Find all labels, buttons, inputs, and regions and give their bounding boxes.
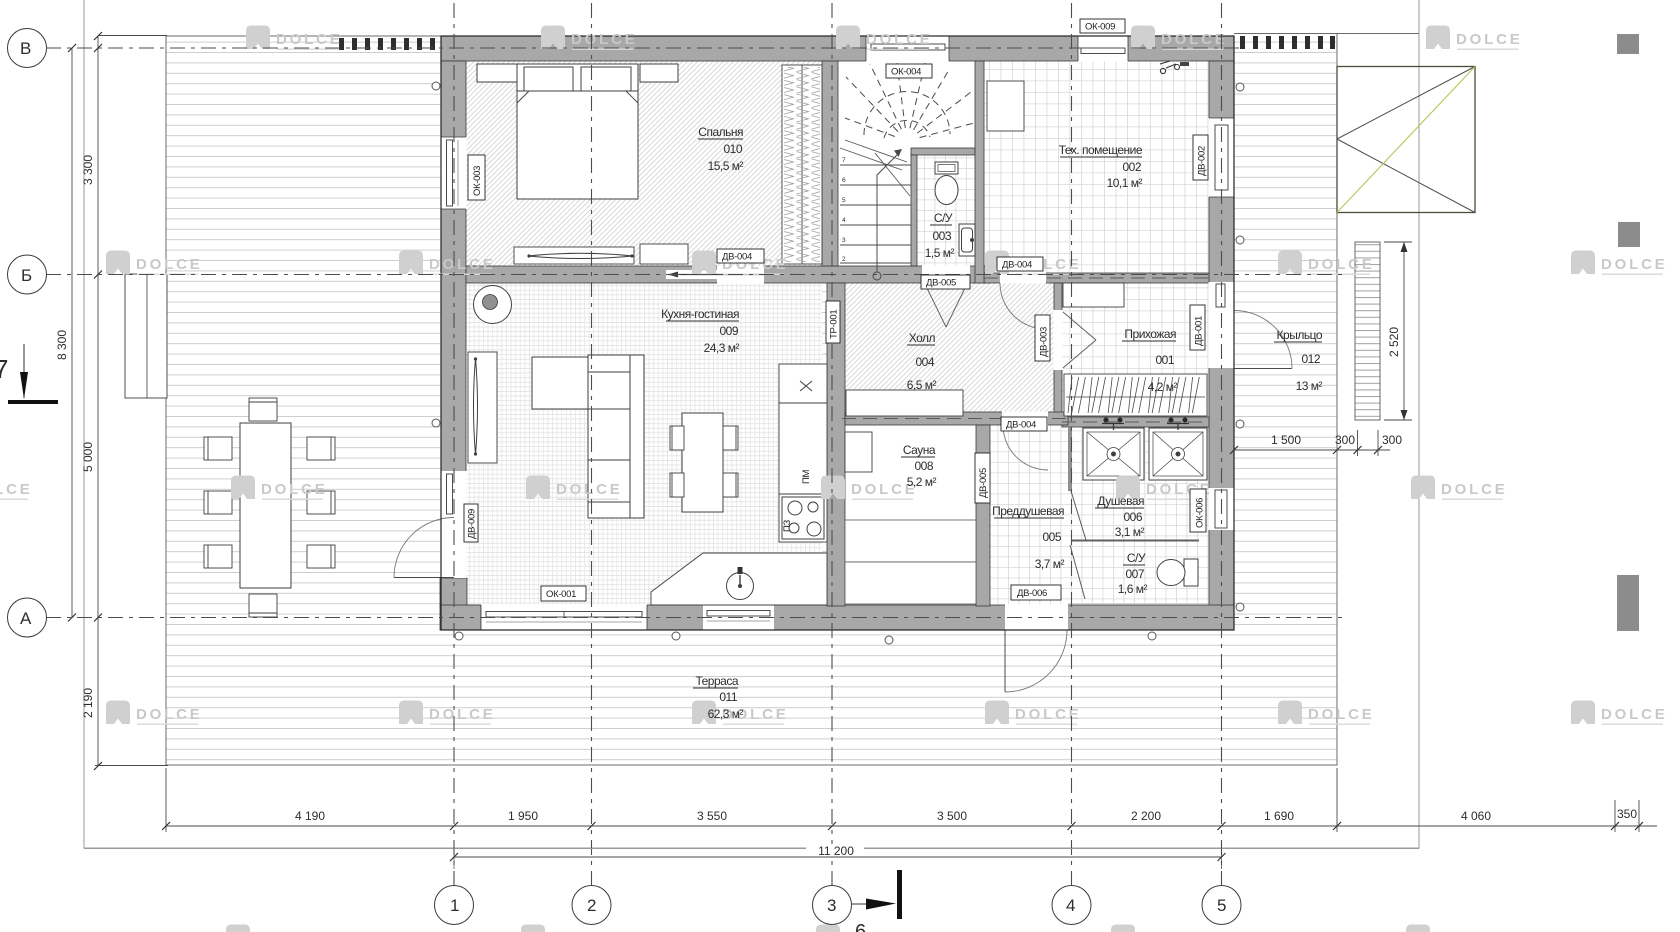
svg-text:Спальня: Спальня bbox=[698, 125, 743, 139]
svg-text:4 060: 4 060 bbox=[1461, 809, 1491, 823]
svg-text:Холл: Холл bbox=[909, 331, 936, 345]
svg-text:6,5 м²: 6,5 м² bbox=[907, 378, 937, 392]
svg-text:007: 007 bbox=[1125, 567, 1144, 581]
svg-text:2: 2 bbox=[587, 896, 596, 915]
svg-text:ДВ-004: ДВ-004 bbox=[722, 252, 752, 263]
svg-text:Терраса: Терраса bbox=[695, 674, 738, 688]
svg-text:3 500: 3 500 bbox=[937, 809, 967, 823]
svg-text:7: 7 bbox=[842, 157, 846, 164]
svg-text:ПМ: ПМ bbox=[801, 469, 812, 484]
svg-text:001: 001 bbox=[1155, 353, 1174, 367]
svg-text:ДВ-009: ДВ-009 bbox=[467, 509, 478, 539]
svg-text:4,2 м²: 4,2 м² bbox=[1148, 380, 1178, 394]
svg-text:ПЗ: ПЗ bbox=[782, 519, 793, 532]
svg-text:ОК-004: ОК-004 bbox=[891, 67, 921, 78]
svg-text:15,5 м²: 15,5 м² bbox=[708, 159, 744, 173]
svg-text:Сауна: Сауна bbox=[903, 443, 936, 457]
svg-text:Преддушевая: Преддушевая bbox=[992, 504, 1064, 518]
svg-text:11 200: 11 200 bbox=[818, 844, 854, 858]
svg-text:3,7 м²: 3,7 м² bbox=[1035, 557, 1065, 571]
svg-text:2 520: 2 520 bbox=[1387, 327, 1401, 357]
svg-text:Б: Б bbox=[21, 266, 32, 285]
svg-text:005: 005 bbox=[1042, 530, 1061, 544]
svg-text:002: 002 bbox=[1122, 160, 1141, 174]
svg-text:300: 300 bbox=[1382, 433, 1402, 447]
svg-text:Душевая: Душевая bbox=[1097, 494, 1144, 508]
svg-text:ДВ-003: ДВ-003 bbox=[1039, 327, 1050, 357]
svg-text:6: 6 bbox=[842, 177, 846, 184]
svg-text:С/У: С/У bbox=[1127, 551, 1146, 565]
svg-text:ОК-001: ОК-001 bbox=[546, 589, 576, 600]
svg-text:С/У: С/У bbox=[934, 211, 953, 225]
svg-text:ДВ-001: ДВ-001 bbox=[1194, 316, 1205, 346]
svg-text:300: 300 bbox=[1335, 433, 1355, 447]
svg-text:Прихожая: Прихожая bbox=[1124, 327, 1176, 341]
svg-text:1,6 м²: 1,6 м² bbox=[1118, 582, 1148, 596]
svg-text:10,1 м²: 10,1 м² bbox=[1107, 176, 1143, 190]
svg-text:ОК-006: ОК-006 bbox=[1195, 498, 1206, 528]
svg-text:011: 011 bbox=[719, 690, 737, 704]
svg-text:1: 1 bbox=[450, 896, 459, 915]
svg-text:ДВ-005: ДВ-005 bbox=[978, 468, 989, 498]
svg-text:3 300: 3 300 bbox=[81, 155, 95, 185]
svg-text:4: 4 bbox=[842, 217, 846, 224]
svg-text:006: 006 bbox=[1123, 510, 1142, 524]
svg-text:13 м²: 13 м² bbox=[1296, 379, 1323, 393]
svg-text:Крыльцо: Крыльцо bbox=[1277, 328, 1323, 342]
svg-text:3: 3 bbox=[842, 237, 846, 244]
svg-text:008: 008 bbox=[914, 459, 933, 473]
svg-text:1 500: 1 500 bbox=[1271, 433, 1301, 447]
svg-text:1,5 м²: 1,5 м² bbox=[925, 246, 955, 260]
svg-text:ДВ-005: ДВ-005 bbox=[926, 278, 956, 289]
svg-text:009: 009 bbox=[719, 324, 738, 338]
svg-text:7: 7 bbox=[0, 354, 8, 384]
svg-text:5: 5 bbox=[842, 197, 846, 204]
svg-text:Кухня-гостиная: Кухня-гостиная bbox=[661, 307, 739, 321]
svg-text:004: 004 bbox=[915, 355, 934, 369]
svg-text:24,3 м²: 24,3 м² bbox=[704, 341, 740, 355]
svg-text:ДВ-004: ДВ-004 bbox=[1002, 260, 1032, 271]
svg-text:62,3 м²: 62,3 м² bbox=[708, 707, 744, 721]
svg-text:ОК-003: ОК-003 bbox=[472, 166, 483, 196]
svg-text:010: 010 bbox=[723, 142, 742, 156]
svg-text:ОК-009: ОК-009 bbox=[1085, 22, 1115, 33]
svg-text:Тех. помещение: Тех. помещение bbox=[1059, 143, 1143, 157]
svg-text:5: 5 bbox=[1217, 896, 1226, 915]
svg-text:2 190: 2 190 bbox=[81, 688, 95, 718]
svg-text:В: В bbox=[20, 39, 31, 58]
svg-text:2 200: 2 200 bbox=[1131, 809, 1161, 823]
svg-text:003: 003 bbox=[932, 229, 951, 243]
svg-text:1 690: 1 690 bbox=[1264, 809, 1294, 823]
svg-text:А: А bbox=[20, 609, 32, 628]
svg-text:350: 350 bbox=[1617, 807, 1637, 821]
svg-text:ДВ-006: ДВ-006 bbox=[1017, 588, 1047, 599]
svg-text:3 550: 3 550 bbox=[697, 809, 727, 823]
svg-text:1 950: 1 950 bbox=[508, 809, 538, 823]
svg-text:ДВ-002: ДВ-002 bbox=[1197, 146, 1208, 176]
svg-text:2: 2 bbox=[842, 256, 846, 263]
svg-text:3,1 м²: 3,1 м² bbox=[1115, 525, 1145, 539]
svg-text:4 190: 4 190 bbox=[295, 809, 325, 823]
svg-text:012: 012 bbox=[1301, 352, 1320, 366]
svg-text:5,2 м²: 5,2 м² bbox=[907, 475, 937, 489]
svg-text:ТР-001: ТР-001 bbox=[829, 310, 840, 339]
svg-text:4: 4 bbox=[1066, 896, 1075, 915]
svg-text:3: 3 bbox=[827, 896, 836, 915]
svg-text:8 300: 8 300 bbox=[55, 330, 69, 360]
svg-text:5 000: 5 000 bbox=[81, 442, 95, 472]
svg-text:ДВ-004: ДВ-004 bbox=[1006, 420, 1036, 431]
